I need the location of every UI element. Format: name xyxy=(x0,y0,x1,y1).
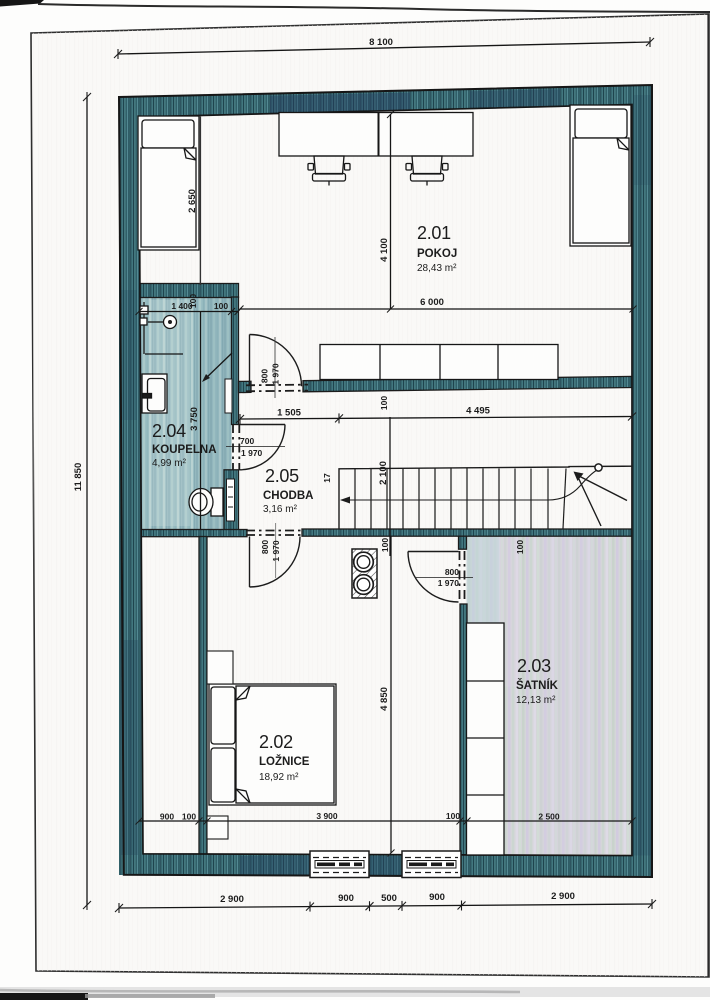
svg-text:ŠATNÍK: ŠATNÍK xyxy=(516,679,559,692)
svg-text:3 750: 3 750 xyxy=(189,407,200,431)
svg-text:2 100: 2 100 xyxy=(378,461,389,485)
svg-text:800: 800 xyxy=(445,567,459,577)
svg-text:1 970: 1 970 xyxy=(271,540,281,562)
svg-text:100: 100 xyxy=(515,540,525,554)
svg-text:2.05: 2.05 xyxy=(265,466,299,486)
svg-text:100: 100 xyxy=(182,812,196,822)
svg-text:1 970: 1 970 xyxy=(438,578,460,588)
svg-text:3,16 m²: 3,16 m² xyxy=(263,504,298,515)
svg-text:4 850: 4 850 xyxy=(379,687,390,711)
svg-text:28,43 m²: 28,43 m² xyxy=(417,263,457,274)
svg-text:100: 100 xyxy=(380,538,390,552)
svg-text:1 970: 1 970 xyxy=(241,448,263,458)
svg-text:2.04: 2.04 xyxy=(152,421,186,441)
svg-text:100: 100 xyxy=(214,301,228,311)
svg-text:2 900: 2 900 xyxy=(551,891,575,902)
svg-text:100: 100 xyxy=(188,294,198,308)
svg-text:2.01: 2.01 xyxy=(417,223,451,243)
svg-text:8 100: 8 100 xyxy=(369,37,393,48)
svg-text:2 900: 2 900 xyxy=(220,894,244,905)
svg-text:17: 17 xyxy=(322,473,332,483)
svg-text:700: 700 xyxy=(240,436,254,446)
svg-text:6 000: 6 000 xyxy=(420,297,444,308)
svg-text:1 970: 1 970 xyxy=(271,363,281,385)
svg-text:2 500: 2 500 xyxy=(538,812,560,822)
svg-text:LOŽNICE: LOŽNICE xyxy=(259,755,310,768)
svg-text:800: 800 xyxy=(260,540,270,554)
svg-text:100: 100 xyxy=(379,396,389,410)
svg-text:12,13 m²: 12,13 m² xyxy=(516,695,556,706)
svg-text:100: 100 xyxy=(446,811,460,821)
svg-text:3 900: 3 900 xyxy=(316,811,338,821)
svg-text:900: 900 xyxy=(429,892,445,903)
svg-text:KOUPELNA: KOUPELNA xyxy=(152,444,217,456)
svg-text:900: 900 xyxy=(160,812,174,822)
svg-text:2 650: 2 650 xyxy=(187,189,198,213)
svg-text:4 495: 4 495 xyxy=(466,406,490,417)
svg-text:11 850: 11 850 xyxy=(73,463,84,492)
svg-text:500: 500 xyxy=(381,893,397,904)
svg-text:4 100: 4 100 xyxy=(379,238,390,262)
svg-text:CHODBA: CHODBA xyxy=(263,490,313,502)
svg-text:800: 800 xyxy=(260,369,270,383)
svg-text:18,92 m²: 18,92 m² xyxy=(259,772,299,783)
svg-text:2.03: 2.03 xyxy=(517,656,551,676)
svg-text:1 505: 1 505 xyxy=(277,408,301,419)
svg-text:4,99 m²: 4,99 m² xyxy=(152,458,187,469)
svg-text:POKOJ: POKOJ xyxy=(417,248,457,260)
svg-text:900: 900 xyxy=(338,893,354,904)
svg-text:2.02: 2.02 xyxy=(259,732,293,752)
